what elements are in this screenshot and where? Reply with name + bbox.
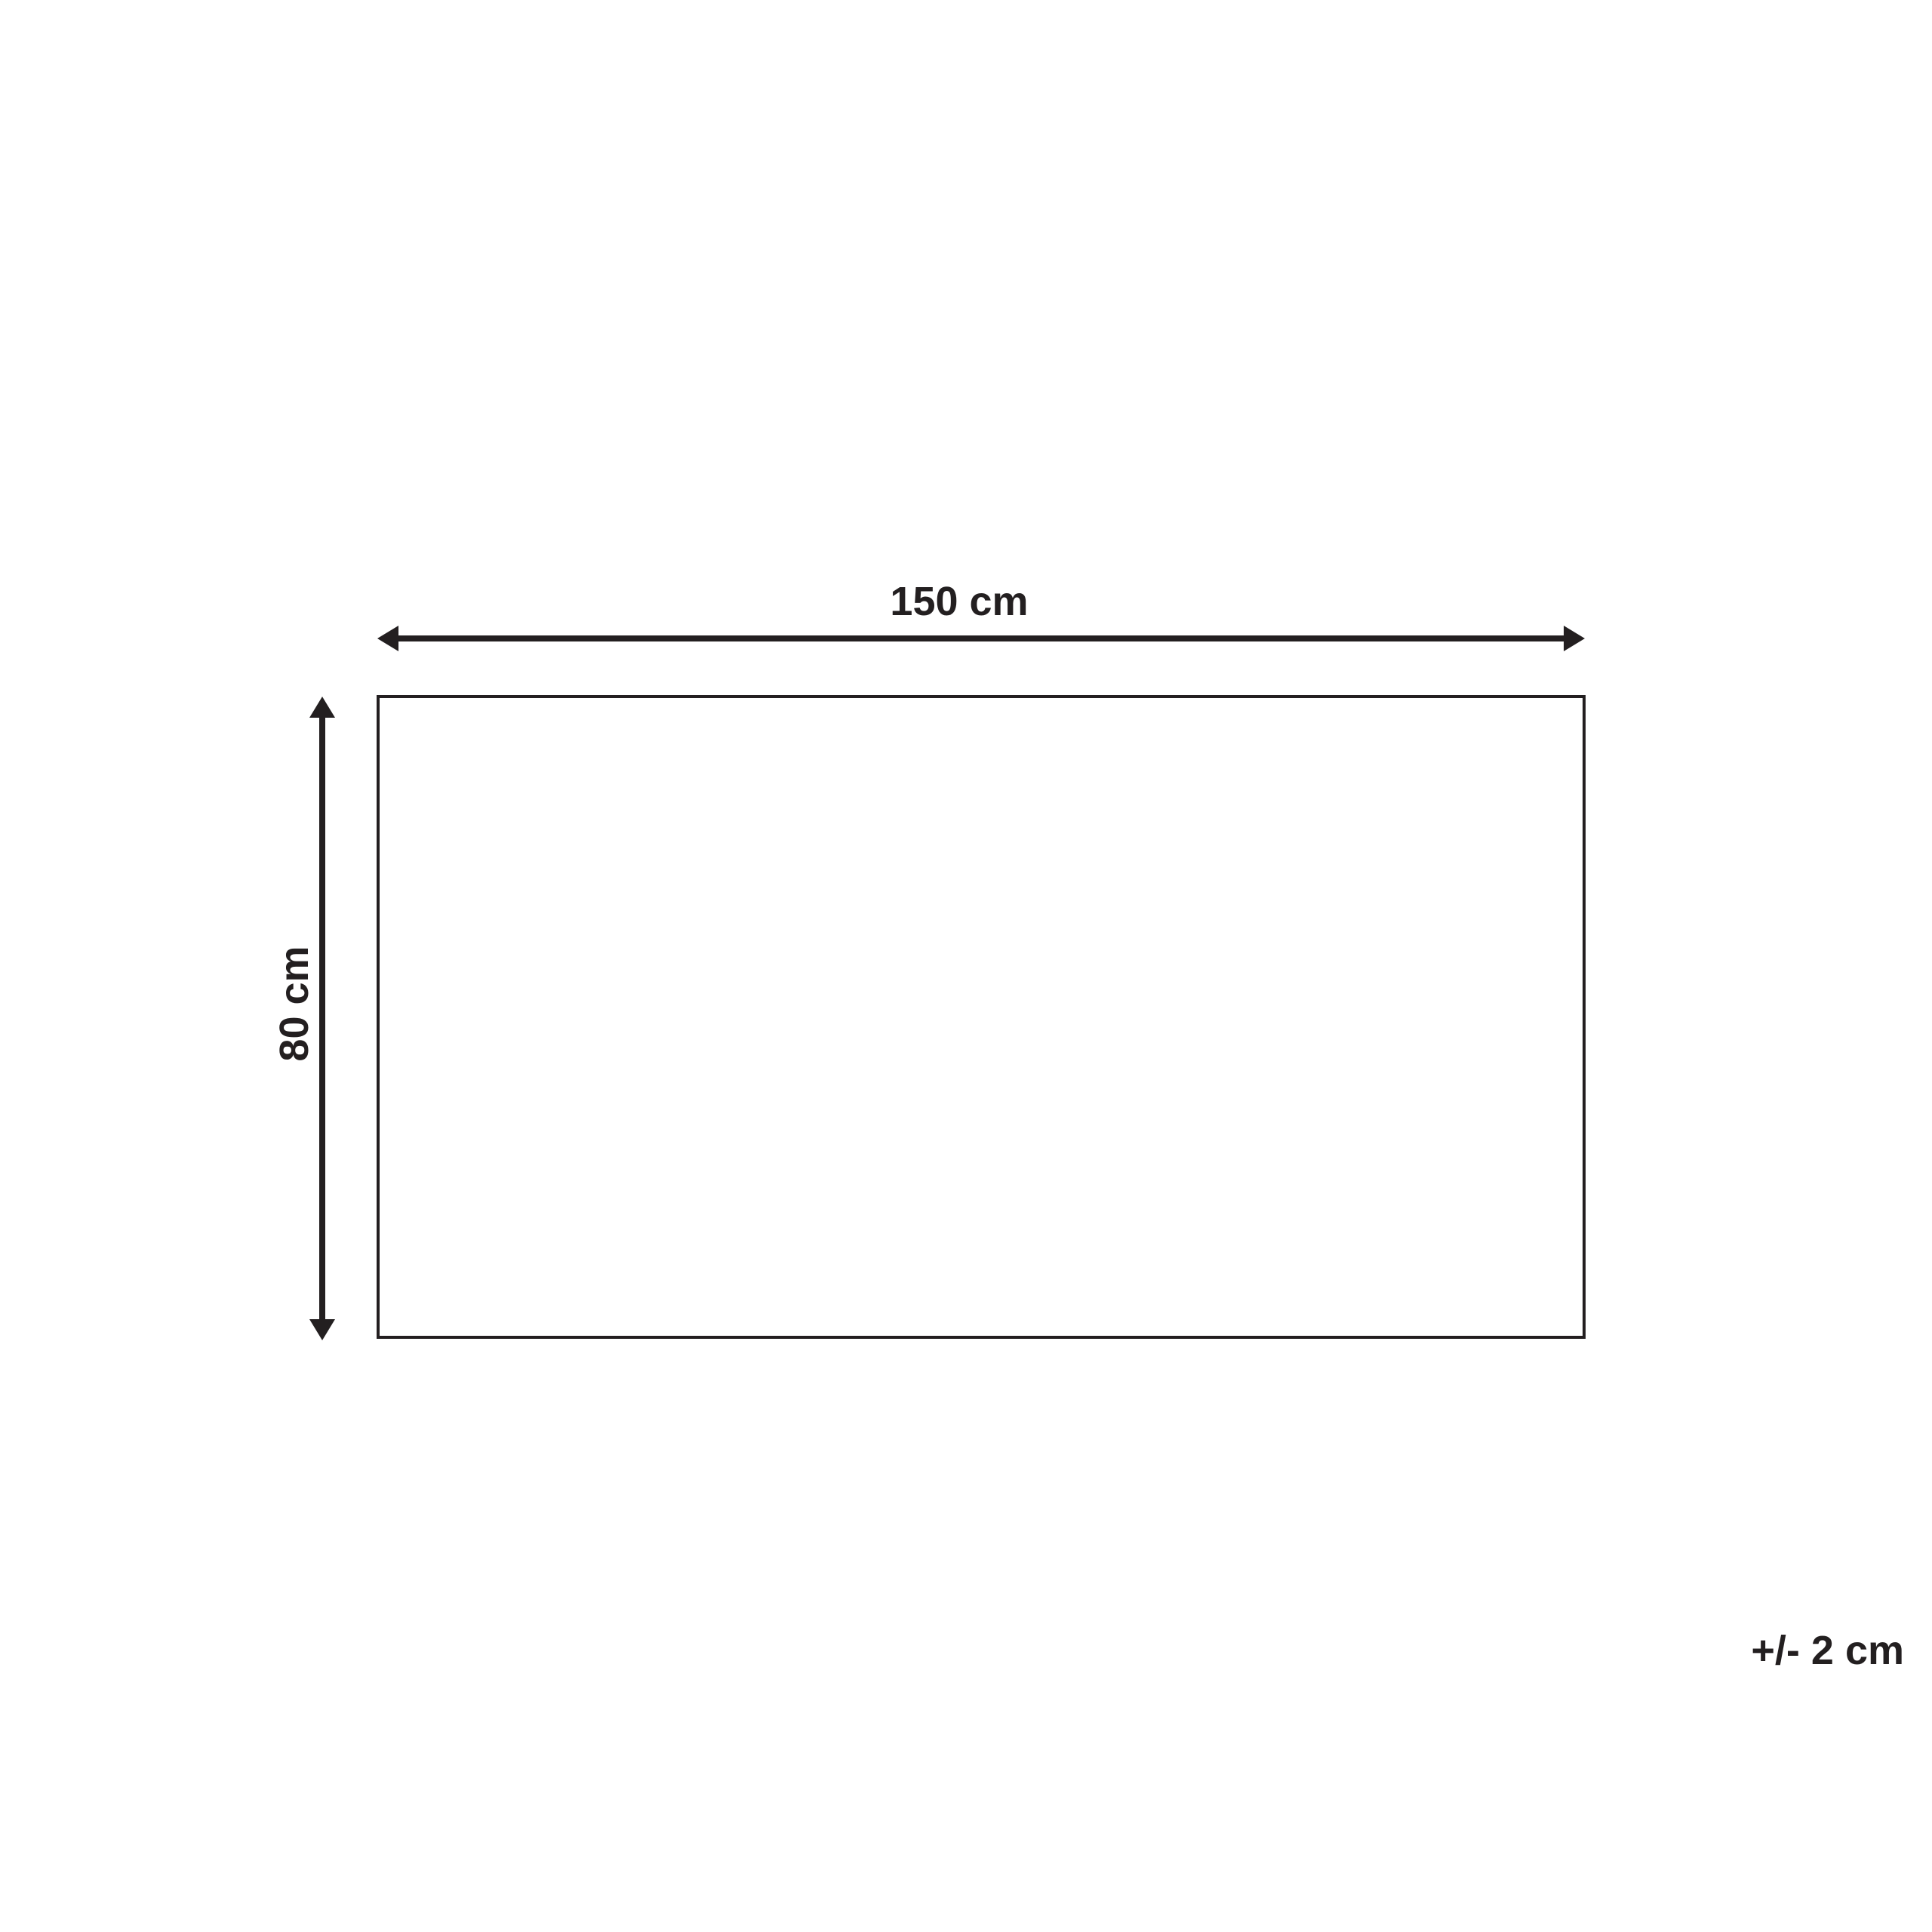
svg-text:150 cm: 150 cm xyxy=(890,579,1028,624)
svg-text:+/- 2 cm: +/- 2 cm xyxy=(1751,1628,1904,1673)
svg-text:80 cm: 80 cm xyxy=(272,946,317,1061)
